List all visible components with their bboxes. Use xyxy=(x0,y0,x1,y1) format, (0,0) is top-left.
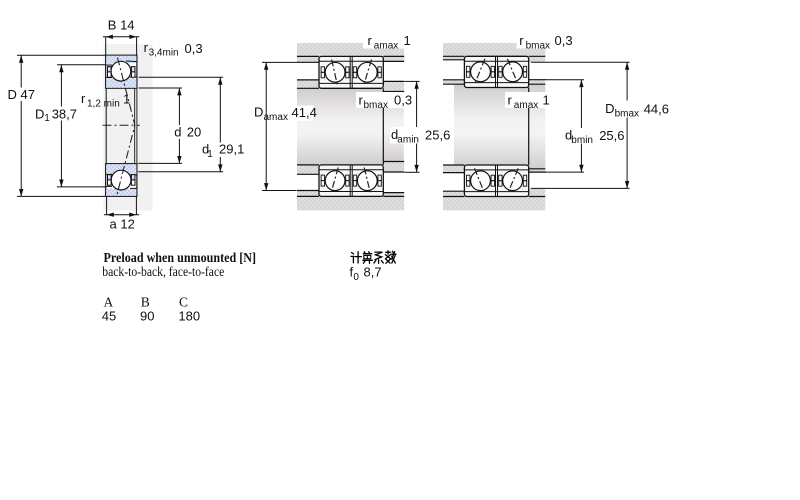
svg-text:bmax: bmax xyxy=(526,41,550,52)
svg-text:bmin: bmin xyxy=(571,135,593,146)
svg-text:0,3: 0,3 xyxy=(394,93,412,108)
svg-text:C: C xyxy=(179,295,188,310)
svg-text:45: 45 xyxy=(102,309,116,324)
svg-text:1: 1 xyxy=(543,93,550,108)
svg-text:a 12: a 12 xyxy=(110,217,135,232)
svg-text:d: d xyxy=(174,125,181,140)
svg-text:bmax: bmax xyxy=(364,100,388,111)
svg-text:1: 1 xyxy=(404,33,411,48)
svg-text:90: 90 xyxy=(140,309,154,324)
svg-text:29,1: 29,1 xyxy=(219,142,244,157)
svg-text:back-to-back, face-to-face: back-to-back, face-to-face xyxy=(102,264,224,279)
svg-text:8,7: 8,7 xyxy=(364,265,382,280)
svg-text:1,2 min: 1,2 min xyxy=(87,99,120,110)
svg-text:B 14: B 14 xyxy=(108,18,135,33)
svg-text:bmax: bmax xyxy=(615,109,639,120)
svg-text:r: r xyxy=(81,91,86,106)
svg-text:3,4min: 3,4min xyxy=(149,48,179,59)
svg-text:1: 1 xyxy=(44,113,50,124)
svg-text:1: 1 xyxy=(207,149,213,160)
svg-text:1: 1 xyxy=(123,92,130,107)
svg-text:amax: amax xyxy=(514,100,538,111)
svg-text:38,7: 38,7 xyxy=(52,107,77,122)
svg-text:r: r xyxy=(519,33,524,48)
svg-text:25,6: 25,6 xyxy=(599,128,624,143)
svg-text:B: B xyxy=(141,295,150,310)
svg-text:r: r xyxy=(508,93,513,108)
svg-text:0,3: 0,3 xyxy=(555,33,573,48)
svg-text:D: D xyxy=(35,107,44,122)
svg-text:41,4: 41,4 xyxy=(292,105,317,120)
svg-text:D: D xyxy=(254,105,263,120)
svg-text:20: 20 xyxy=(187,125,201,140)
svg-text:amax: amax xyxy=(264,112,288,123)
svg-text:D: D xyxy=(605,101,614,116)
svg-text:r: r xyxy=(368,33,373,48)
svg-text:47: 47 xyxy=(21,87,35,102)
svg-text:44,6: 44,6 xyxy=(644,102,669,117)
svg-text:0,3: 0,3 xyxy=(185,41,203,56)
svg-text:amin: amin xyxy=(397,135,419,146)
svg-text:amax: amax xyxy=(374,41,398,52)
svg-text:D: D xyxy=(8,87,17,102)
svg-text:25,6: 25,6 xyxy=(425,128,450,143)
svg-text:A: A xyxy=(104,295,114,310)
svg-text:0: 0 xyxy=(353,272,359,283)
svg-text:180: 180 xyxy=(178,309,200,324)
